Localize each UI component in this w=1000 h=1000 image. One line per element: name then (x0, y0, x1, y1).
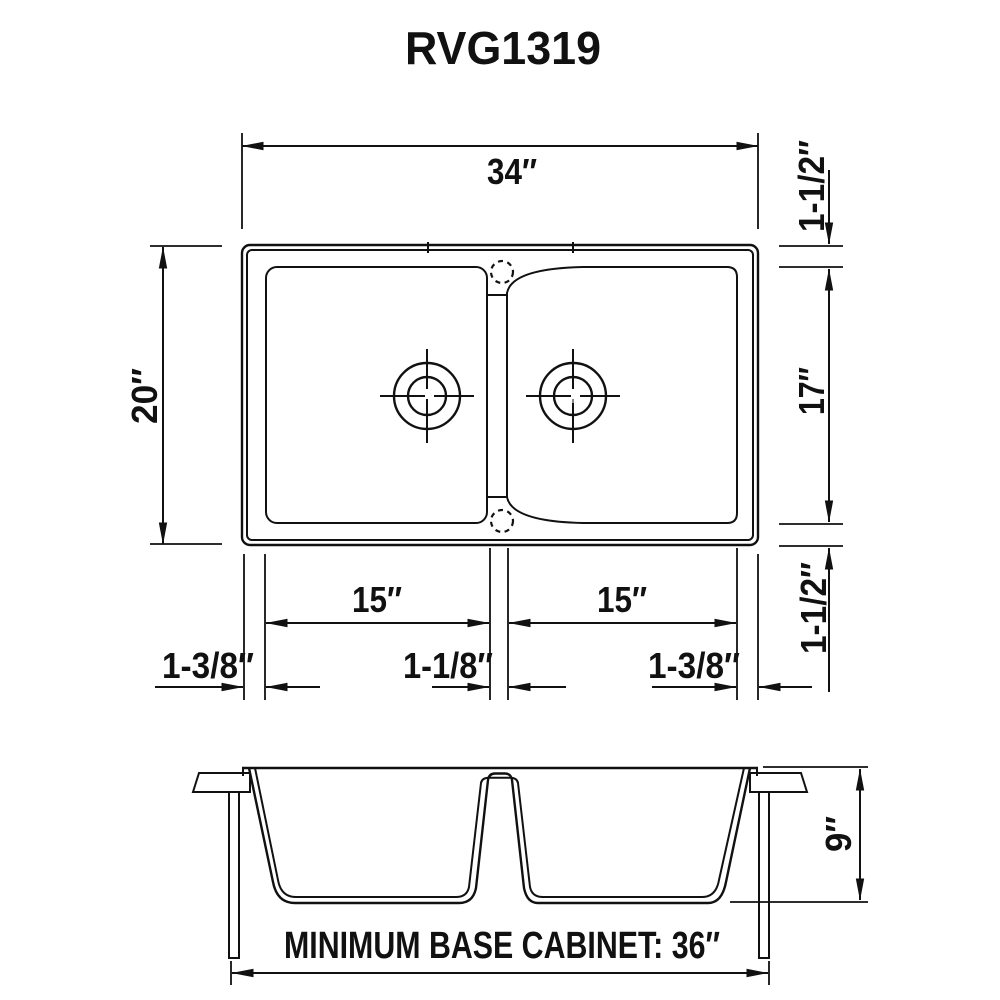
mount-hole-top-dashed-circle (491, 261, 513, 283)
cabinet-note: MINIMUM BASE CABINET: 36″ (284, 925, 720, 967)
dim-label-center-rim: 1-1/8″ (403, 645, 493, 686)
drain-right (526, 349, 620, 443)
mount-hole-bottom-dashed-circle (491, 510, 513, 532)
front-view: 9″ MINIMUM BASE CABINET: 36″ (193, 767, 868, 985)
model-number-title: RVG1319 (405, 22, 601, 74)
dim-label-top-rim: 1-1/2″ (791, 140, 832, 232)
dim-label-overall-depth: 20″ (124, 368, 165, 424)
sink-section-outer-wall (249, 768, 750, 903)
clip-right (750, 773, 807, 792)
top-view (242, 242, 758, 545)
sink-outer-rim (242, 245, 758, 545)
dim-label-right-bowl-width: 15″ (597, 579, 647, 620)
drawing-canvas: RVG1319 (0, 0, 1000, 1000)
dim-label-left-bowl-width: 15″ (352, 579, 402, 620)
dim-label-inner-depth: 17″ (791, 367, 832, 415)
dim-label-bowl-depth: 9″ (818, 816, 859, 852)
drain-left (380, 349, 474, 443)
dim-label-right-rim: 1-3/8″ (648, 645, 740, 686)
dim-label-bottom-rim: 1-1/2″ (793, 562, 834, 654)
dim-label-overall-width: 34″ (487, 151, 537, 192)
clip-left-stud (229, 792, 239, 958)
sink-spec-drawing: RVG1319 (0, 0, 1000, 1000)
clip-right-stud (759, 792, 769, 958)
sink-section-inner-wall (255, 768, 744, 897)
top-view-dimensions: 34″ 20″ 1-1/2″ 17″ 1-1/2″ 15″ 15″ 1-3/8″ (124, 133, 843, 700)
clip-left (193, 773, 250, 792)
dim-label-left-rim: 1-3/8″ (162, 645, 254, 686)
